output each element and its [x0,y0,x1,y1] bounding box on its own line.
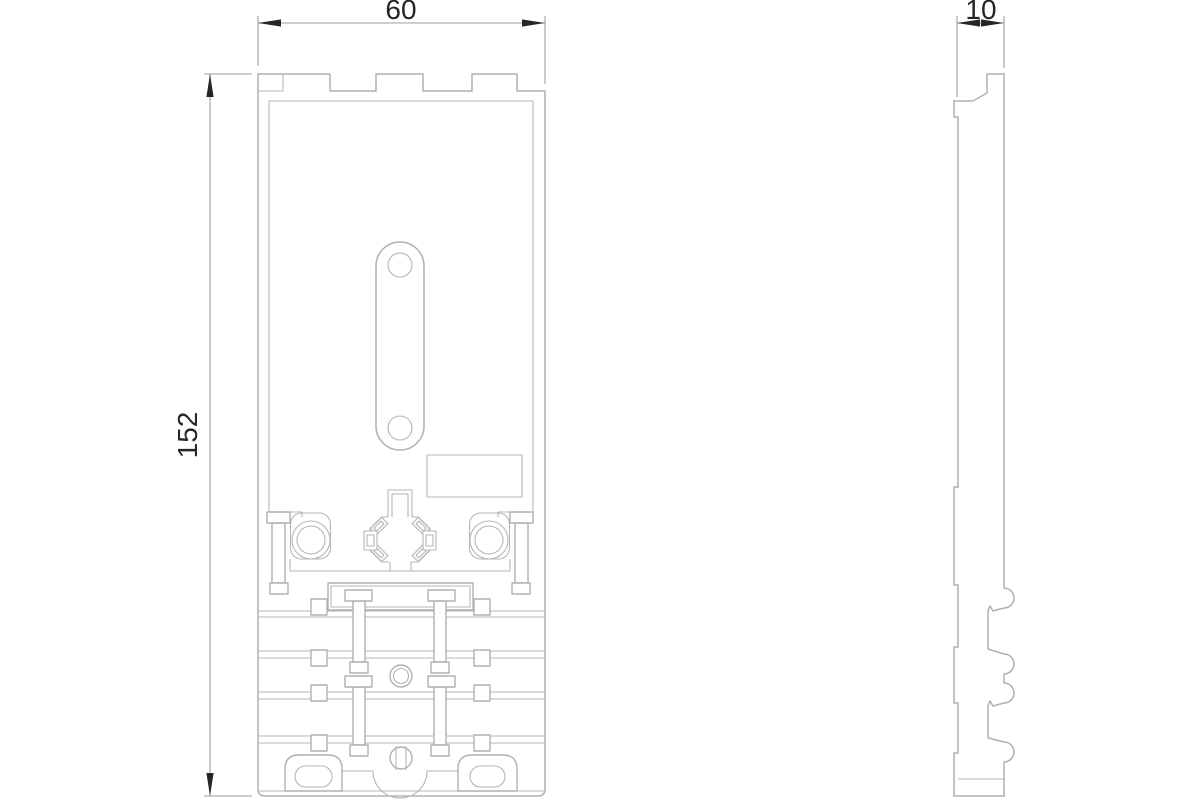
slot-hole-bottom [388,416,412,440]
side-right-profile [988,74,1014,796]
bottom-arch [342,771,458,798]
terminal-screw-lower-right [428,676,455,756]
center-clip-feature [364,490,436,571]
mounting-slot [376,242,424,450]
front-view [258,74,545,798]
extension-lines [204,74,252,796]
label-plate [427,455,522,497]
arrowhead-top [206,74,213,97]
side-left-edge [954,101,958,487]
boss-left-inner [297,526,325,554]
side-front-ribs [954,487,958,796]
terminal-screw-lower-left [345,676,372,756]
foot-right [458,755,517,791]
clip-channel-top [388,490,412,517]
dimension-height-value: 152 [172,412,203,459]
pin-right [510,512,533,594]
technical-drawing-canvas: 60 152 10 [0,0,1200,800]
center-screw-lower [390,747,412,769]
arrowhead-left [258,19,281,26]
plate-outline [258,74,545,796]
side-view [954,74,1014,796]
extension-lines [957,16,1004,97]
slot-hole-top [388,253,412,277]
dimension-depth: 10 [957,0,1004,97]
clip-tab-left [364,531,377,550]
arrowhead-bottom [206,773,213,796]
arrowhead-right [522,19,545,26]
clip-tab-right [423,531,436,550]
side-top-profile [954,74,1004,101]
foot-left [285,755,342,791]
dimension-width-value: 60 [385,0,416,25]
boss-right-outer [470,521,508,559]
pin-left [267,512,290,594]
clip-channel-bottom [390,562,411,571]
top-left-tab-detail [258,74,283,91]
boss-left-outer [292,521,330,559]
dimension-width: 60 [258,0,545,84]
mid-recess-line [290,559,510,571]
dimension-height: 152 [172,74,252,796]
dimension-depth-value: 10 [965,0,996,25]
boss-right-inner [475,526,503,554]
